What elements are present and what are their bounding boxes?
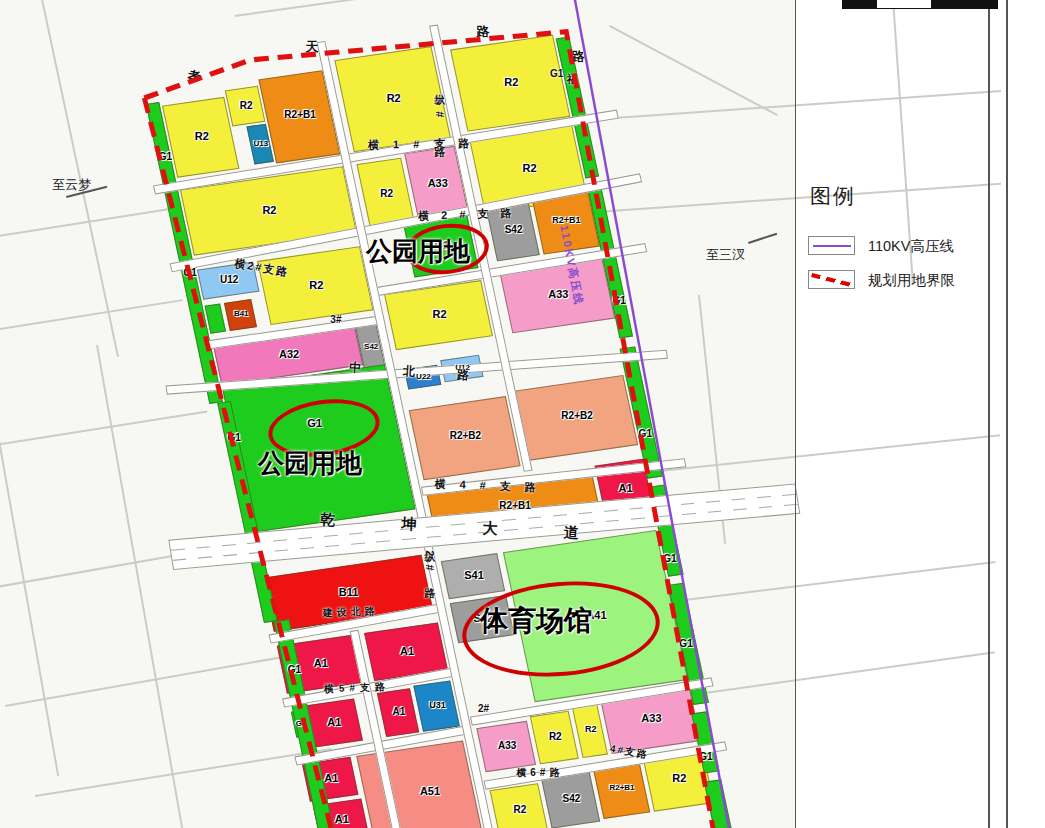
annotation-text: 体育场馆 — [480, 602, 592, 640]
zone-code-label: R2 — [262, 204, 276, 216]
zone-code-label: A33 — [641, 712, 661, 724]
zone-code-label: R2 — [433, 308, 447, 320]
zone-code-label: A1 — [619, 482, 633, 494]
planning-map-page: 乾坤大道 R2R2U13R2+B1R2R2R2R2A33R2U12B41R2G1… — [0, 0, 1045, 828]
annotation-text: 公园用地 — [366, 234, 470, 269]
zone-code-label: R2 — [309, 279, 323, 291]
road-name-label: 横6#路 — [516, 766, 563, 780]
zone-code-label: R2 — [513, 804, 526, 815]
zone-code-label: R2 — [549, 731, 562, 742]
road-name-label: 路 — [476, 23, 489, 41]
road-name-label: 纵1#支路 — [432, 85, 447, 147]
scale-bar-segment — [877, 0, 931, 8]
avenue-name-label: 乾坤大道 — [320, 510, 646, 546]
zone-code-label: A1 — [335, 813, 349, 825]
legend-title: 图例 — [810, 182, 856, 210]
road-name-label: 福 — [567, 72, 578, 87]
zone-block-G1 — [704, 779, 736, 828]
zone-code-label: B41 — [234, 309, 249, 318]
road-name-label: G1 — [550, 68, 563, 79]
zone-code-label: A1 — [324, 772, 338, 784]
zone-code-label: G1 — [679, 638, 692, 649]
frame-line-outer — [1006, 0, 1008, 828]
zone-code-label: S42 — [563, 793, 581, 804]
zone-code-label: G1 — [227, 432, 240, 443]
zone-code-label: A1 — [393, 706, 406, 717]
road-name-label: 横5#支路 — [324, 680, 391, 696]
road-name-label: 2# — [478, 703, 489, 714]
zone-code-label: R2+B1 — [499, 500, 530, 511]
zone-code-label: A1 — [327, 716, 341, 728]
boundary-swatch — [808, 270, 855, 289]
zone-code-label: G1 — [183, 267, 196, 278]
zone-block-G1 — [205, 304, 226, 334]
road-name-label: 天 — [306, 38, 319, 56]
frame-line-inner — [988, 0, 990, 828]
zone-code-label: A33 — [548, 288, 568, 300]
zone-code-label: R2+B2 — [561, 410, 592, 421]
scale-bar — [842, 0, 998, 9]
zone-code-label: R2 — [672, 772, 686, 784]
boundary-glyph — [811, 273, 852, 287]
zone-code-label: A32 — [279, 348, 299, 360]
zone-code-label: R2+B1 — [609, 783, 634, 792]
zone-code-label: R2 — [523, 162, 537, 174]
zone-code-label: R2 — [240, 100, 253, 111]
direction-label: 至三汊 — [706, 246, 745, 264]
hvline-glyph — [813, 245, 851, 247]
zone-code-label: U13 — [254, 139, 269, 148]
zone-code-label: G1 — [288, 664, 301, 675]
zone-code-label: R2 — [195, 130, 209, 142]
panel-divider — [795, 0, 796, 828]
zone-code-label: A1 — [314, 657, 328, 669]
road-name-label: 建设北路 — [322, 604, 378, 620]
road-name-label: 横1#支路 — [368, 136, 483, 153]
zone-code-label: G1 — [699, 751, 712, 762]
zone-code-label: S42 — [364, 342, 378, 351]
zone-code-label: A33 — [498, 740, 516, 751]
road-name-label: 路 — [572, 48, 585, 66]
zone-code-label: A33 — [428, 177, 448, 189]
zone-code-label: B11 — [339, 586, 359, 598]
zone-code-label: R2+B1 — [284, 109, 315, 120]
legend-item-label: 110KV高压线 — [868, 237, 954, 256]
zone-code-label: S41 — [464, 569, 484, 581]
zone-code-label: U31 — [429, 700, 446, 710]
zone-code-label: R2 — [585, 724, 597, 734]
zone-code-label: U12 — [220, 274, 238, 285]
zone-code-label: R2+B2 — [450, 430, 481, 441]
zone-code-label: S42 — [505, 224, 523, 235]
zone-code-label: R2 — [387, 92, 401, 104]
zone-code-label: R2 — [380, 188, 393, 199]
legend-item-label: 规划用地界限 — [868, 271, 955, 290]
scale-bar-segment — [931, 0, 997, 8]
zone-code-label: R2+B1 — [552, 215, 580, 225]
road-name-label: 纵2#路 — [422, 542, 437, 586]
scale-bar-segment — [843, 0, 877, 8]
annotation-text: 公园用地 — [258, 446, 362, 481]
zone-code-label: G1 — [295, 719, 306, 728]
zone-code-label: G1 — [612, 295, 625, 306]
zone-code-label: G1 — [639, 428, 652, 439]
powerline-swatch — [808, 236, 855, 255]
road-name-label: 孝 — [186, 67, 202, 87]
zone-code-label: G1 — [159, 151, 172, 162]
zone-code-label: A51 — [420, 785, 440, 797]
zone-code-label: G1 — [663, 553, 676, 564]
zone-code-label: R2 — [504, 76, 518, 88]
road-name-label: 3# — [330, 314, 341, 325]
zone-code-label: A1 — [400, 645, 414, 657]
